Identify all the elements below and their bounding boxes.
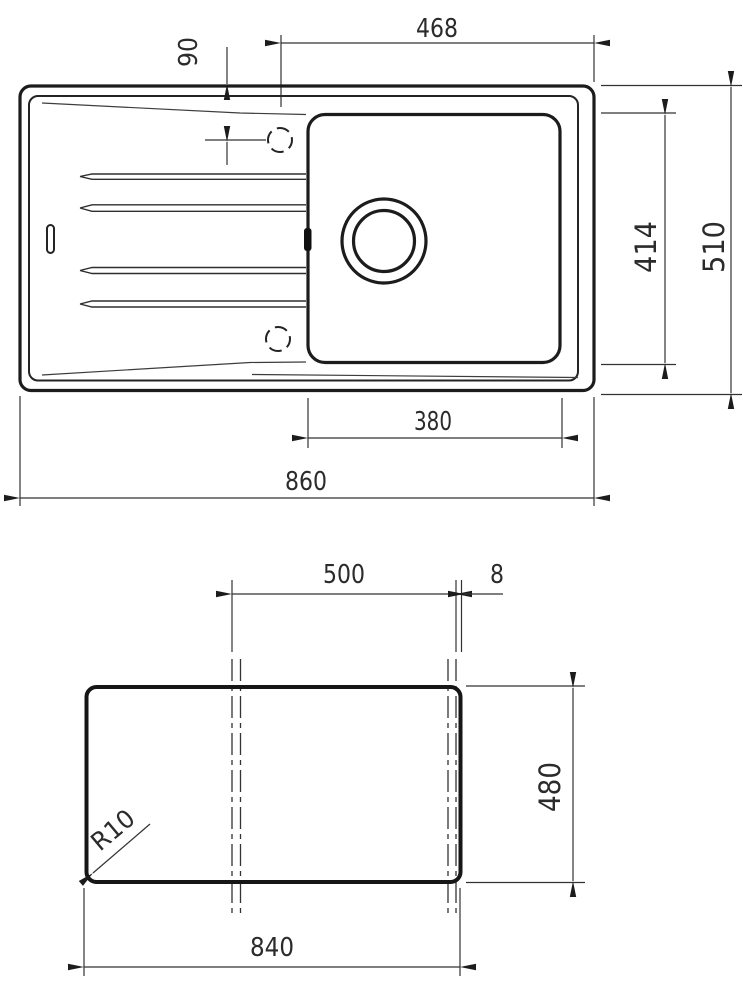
dim-label-468: 468 bbox=[416, 14, 458, 44]
dim-label-480: 480 bbox=[533, 762, 567, 812]
drainboard-bottom-taper-line bbox=[42, 362, 306, 375]
drain-hole bbox=[354, 211, 415, 272]
dim-label-840: 840 bbox=[250, 933, 294, 963]
dim-label-510: 510 bbox=[697, 221, 731, 273]
dim-90: 90 bbox=[174, 37, 227, 165]
cutout-view: 500 8 480 840 R10 bbox=[84, 560, 585, 976]
dim-label-414: 414 bbox=[629, 221, 663, 273]
dim-480: 480 bbox=[533, 688, 573, 881]
dim-label-r10: R10 bbox=[85, 804, 140, 857]
dim-label-860: 860 bbox=[285, 467, 327, 497]
dim-840: 840 bbox=[84, 933, 460, 967]
dim-label-90: 90 bbox=[174, 37, 204, 67]
dim-414: 414 bbox=[629, 115, 665, 363]
callout-r10: R10 bbox=[85, 804, 150, 873]
dim-label-500: 500 bbox=[323, 560, 365, 590]
dim-860: 860 bbox=[20, 467, 594, 498]
dim-500: 500 bbox=[232, 560, 456, 594]
dim-510: 510 bbox=[697, 87, 731, 393]
groove-4 bbox=[80, 301, 306, 307]
taphole-top bbox=[268, 128, 292, 152]
cutout-centerlines bbox=[232, 659, 456, 918]
bowl-edge-mark bbox=[304, 228, 312, 251]
groove-3 bbox=[80, 268, 306, 274]
dim-380: 380 bbox=[308, 407, 562, 438]
cutout-extension-lines bbox=[84, 580, 585, 976]
sink-inner-rim bbox=[29, 96, 578, 381]
drawing-canvas: 468 90 414 510 380 860 bbox=[0, 0, 756, 996]
deck-line-under-bowl bbox=[252, 375, 578, 378]
dim-label-380: 380 bbox=[414, 407, 452, 437]
drainboard-top-taper-line bbox=[42, 103, 306, 115]
cutout-outline bbox=[87, 687, 461, 882]
dim-468: 468 bbox=[281, 14, 594, 44]
overflow-slot bbox=[47, 225, 54, 253]
bowl-outline bbox=[308, 115, 560, 363]
top-view: 468 90 414 510 380 860 bbox=[20, 14, 742, 506]
drainer-grooves bbox=[80, 174, 306, 307]
groove-2 bbox=[80, 205, 306, 212]
sink-technical-drawing: 468 90 414 510 380 860 bbox=[0, 0, 756, 996]
dim-label-8: 8 bbox=[490, 560, 504, 590]
dim-8: 8 bbox=[464, 560, 504, 594]
taphole-bottom bbox=[266, 327, 290, 351]
groove-1 bbox=[80, 174, 306, 179]
